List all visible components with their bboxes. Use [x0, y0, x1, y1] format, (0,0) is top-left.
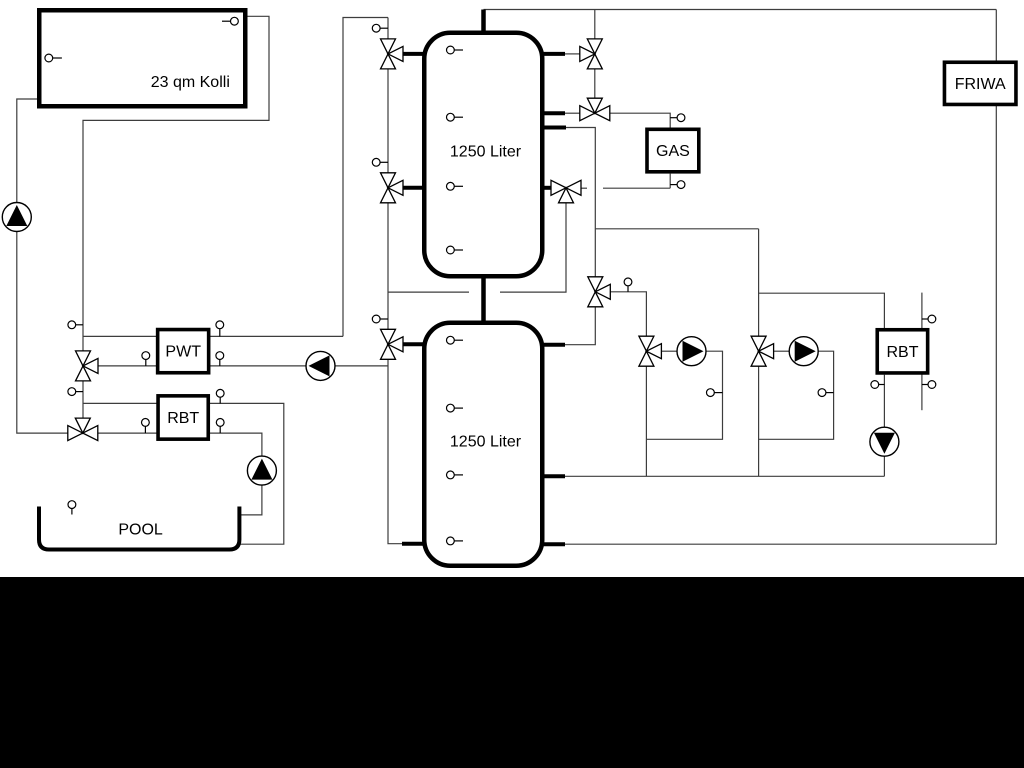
svg-text:RBT: RBT	[167, 410, 199, 427]
svg-text:1250 Liter: 1250 Liter	[450, 434, 522, 451]
svg-text:POOL: POOL	[118, 522, 163, 539]
svg-text:RBT: RBT	[887, 344, 919, 361]
svg-text:GAS: GAS	[656, 143, 690, 160]
svg-text:FRIWA: FRIWA	[955, 76, 1006, 93]
svg-text:23 qm Kolli: 23 qm Kolli	[151, 74, 230, 91]
svg-text:1250 Liter: 1250 Liter	[450, 144, 522, 161]
svg-text:PWT: PWT	[165, 344, 201, 361]
